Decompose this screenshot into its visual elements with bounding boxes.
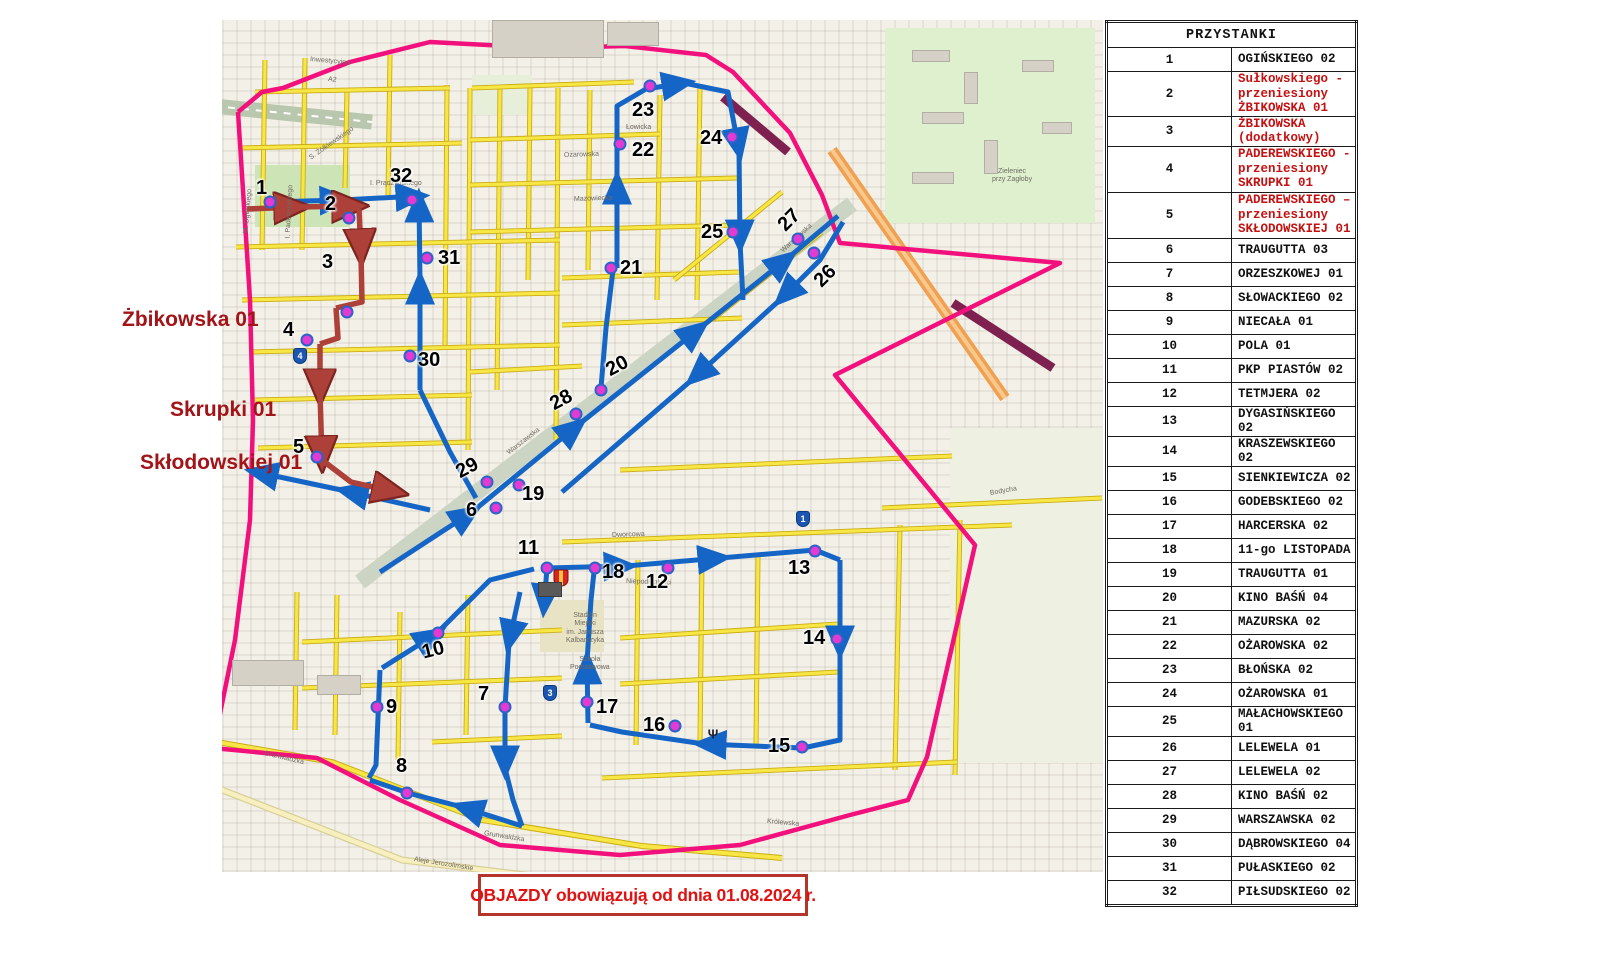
stop-marker-number: 16 xyxy=(643,715,665,735)
stop-name-cell: PKP PIASTÓW 02 xyxy=(1232,358,1357,382)
table-row: 20KINO BAŚŃ 04 xyxy=(1107,586,1357,610)
table-row: 2Sułkowskiego - przeniesionyŻBIKOWSKA 01 xyxy=(1107,72,1357,117)
stop-number-cell: 9 xyxy=(1107,310,1232,334)
stop-number-cell: 8 xyxy=(1107,286,1232,310)
stop-marker-dot xyxy=(406,194,419,207)
table-row: 15SIENKIEWICZA 02 xyxy=(1107,466,1357,490)
stop-marker-dot xyxy=(726,131,739,144)
stop-number-cell: 6 xyxy=(1107,238,1232,262)
table-row: 31PUŁASKIEGO 02 xyxy=(1107,856,1357,880)
poi-label: Szkoła Podstawowa xyxy=(570,656,610,673)
stop-number-cell: 22 xyxy=(1107,634,1232,658)
stop-number-cell: 7 xyxy=(1107,262,1232,286)
building-footprint xyxy=(1042,122,1072,134)
building-footprint xyxy=(607,22,659,46)
stop-marker-dot xyxy=(589,562,602,575)
relocated-stop-label: Skłodowskiej 01 xyxy=(140,451,302,475)
detour-banner-text: OBJAZDY obowiązują od dnia 01.08.2024 r. xyxy=(470,885,816,906)
table-row: 4PADEREWSKIEGO -przeniesionySKRUPKI 01 xyxy=(1107,146,1357,192)
stop-name-cell: WARSZAWSKA 02 xyxy=(1232,808,1357,832)
stop-number-cell: 10 xyxy=(1107,334,1232,358)
stop-number-cell: 27 xyxy=(1107,760,1232,784)
table-row: 30DĄBROWSKIEGO 04 xyxy=(1107,832,1357,856)
stops-table-title: PRZYSTANKI xyxy=(1107,22,1357,48)
stop-name-cell: OGIŃSKIEGO 02 xyxy=(1232,48,1357,72)
building-footprint xyxy=(538,582,562,597)
stop-name-cell: NIECAŁA 01 xyxy=(1232,310,1357,334)
stop-marker-number: 23 xyxy=(632,100,654,120)
stop-name-cell: KINO BAŚŃ 04 xyxy=(1232,586,1357,610)
stop-marker-dot xyxy=(727,226,740,239)
stop-marker-number: 9 xyxy=(386,697,397,717)
stop-marker-number: 15 xyxy=(768,736,790,756)
stop-marker-dot xyxy=(371,701,384,714)
stop-marker-dot xyxy=(421,252,434,265)
stop-number-cell: 20 xyxy=(1107,586,1232,610)
stop-name-cell: LELEWELA 02 xyxy=(1232,760,1357,784)
building-footprint xyxy=(1022,60,1054,72)
stop-name-cell: MAZURSKA 02 xyxy=(1232,610,1357,634)
table-row: 16GODEBSKIEGO 02 xyxy=(1107,490,1357,514)
stop-marker-dot xyxy=(595,384,608,397)
stop-number-cell: 24 xyxy=(1107,682,1232,706)
stop-marker-dot xyxy=(796,741,809,754)
stops-table: PRZYSTANKI 1OGIŃSKIEGO 022Sułkowskiego -… xyxy=(1105,20,1358,907)
stop-marker-dot xyxy=(481,476,494,489)
building-footprint xyxy=(912,50,950,62)
stop-number-cell: 4 xyxy=(1107,146,1232,192)
building-footprint xyxy=(232,660,304,686)
relocated-stop-label: Skrupki 01 xyxy=(170,398,276,422)
building-footprint xyxy=(922,112,964,124)
table-row: 13DYGASIŃSKIEGO 02 xyxy=(1107,406,1357,436)
stops-table-header-row: PRZYSTANKI xyxy=(1107,22,1357,48)
table-row: 24OŻAROWSKA 01 xyxy=(1107,682,1357,706)
stop-marker-number: 18 xyxy=(602,562,624,582)
road-number-shield: 1 xyxy=(796,511,810,527)
stop-name-cell: BŁOŃSKA 02 xyxy=(1232,658,1357,682)
table-row: 1811-go LISTOPADA xyxy=(1107,538,1357,562)
table-row: 28KINO BAŚŃ 02 xyxy=(1107,784,1357,808)
stop-marker-number: 30 xyxy=(418,350,440,370)
stop-marker-number: 8 xyxy=(396,756,407,776)
stop-name-cell: OŻAROWSKA 01 xyxy=(1232,682,1357,706)
road-number-shield: 4 xyxy=(293,348,307,364)
stop-marker-number: 7 xyxy=(478,684,489,704)
stop-number-cell: 32 xyxy=(1107,880,1232,905)
stop-number-cell: 17 xyxy=(1107,514,1232,538)
stop-name-cell: MAŁACHOWSKIEGO 01 xyxy=(1232,706,1357,736)
stop-number-cell: 31 xyxy=(1107,856,1232,880)
stop-number-cell: 23 xyxy=(1107,658,1232,682)
stop-marker-dot xyxy=(669,720,682,733)
stop-marker-number: 22 xyxy=(632,140,654,160)
table-row: 3ŻBIKOWSKA (dodatkowy) xyxy=(1107,116,1357,146)
stop-marker-dot xyxy=(792,233,805,246)
stop-name-cell: GODEBSKIEGO 02 xyxy=(1232,490,1357,514)
table-row: 5PADEREWSKIEGO –przeniesionySKŁODOWSKIEJ… xyxy=(1107,192,1357,238)
poi-label: Zieleniec przy Zagłoby xyxy=(992,168,1032,185)
table-row: 21MAZURSKA 02 xyxy=(1107,610,1357,634)
stop-name-cell: TRAUGUTTA 01 xyxy=(1232,562,1357,586)
stop-marker-dot xyxy=(644,80,657,93)
stop-marker-dot xyxy=(343,212,356,225)
table-row: 22OŻAROWSKA 02 xyxy=(1107,634,1357,658)
street-name-label: Ożarowska xyxy=(564,151,599,159)
building-footprint xyxy=(492,20,604,58)
table-row: 10POLA 01 xyxy=(1107,334,1357,358)
stop-marker-dot xyxy=(541,562,554,575)
stop-marker-number: 2 xyxy=(325,194,336,214)
stop-name-cell: OŻAROWSKA 02 xyxy=(1232,634,1357,658)
street-name-label: Mazowiecka xyxy=(574,195,613,203)
table-row: 6TRAUGUTTA 03 xyxy=(1107,238,1357,262)
poi-label: Stadion Miejski im. Janusza Kalbarczyka xyxy=(566,612,604,646)
stop-number-cell: 30 xyxy=(1107,832,1232,856)
stop-name-cell: 11-go LISTOPADA xyxy=(1232,538,1357,562)
relocated-stop-label: Żbikowska 01 xyxy=(122,308,259,332)
stop-marker-dot xyxy=(490,502,503,515)
stop-marker-dot xyxy=(311,451,324,464)
stop-marker-dot xyxy=(581,696,594,709)
table-row: 8SŁOWACKIEGO 02 xyxy=(1107,286,1357,310)
stop-name-cell: POLA 01 xyxy=(1232,334,1357,358)
stop-marker-number: 24 xyxy=(700,128,722,148)
stop-number-cell: 29 xyxy=(1107,808,1232,832)
building-footprint xyxy=(984,140,998,174)
stop-marker-number: 19 xyxy=(522,484,544,504)
table-row: 32PIŁSUDSKIEGO 02 xyxy=(1107,880,1357,905)
stop-marker-dot xyxy=(605,262,618,275)
stop-marker-dot xyxy=(401,787,414,800)
stop-marker-dot xyxy=(808,247,821,260)
station-symbol: Ψ xyxy=(708,727,719,742)
stop-number-cell: 19 xyxy=(1107,562,1232,586)
stop-name-cell: PADEREWSKIEGO -przeniesionySKRUPKI 01 xyxy=(1232,146,1357,192)
stop-name-cell: TRAUGUTTA 03 xyxy=(1232,238,1357,262)
stop-number-cell: 18 xyxy=(1107,538,1232,562)
stop-name-cell: KRASZEWSKIEGO 02 xyxy=(1232,436,1357,466)
stop-number-cell: 16 xyxy=(1107,490,1232,514)
stop-number-cell: 21 xyxy=(1107,610,1232,634)
stop-marker-dot xyxy=(614,138,627,151)
stop-marker-number: 17 xyxy=(596,697,618,717)
stop-name-cell: Sułkowskiego - przeniesionyŻBIKOWSKA 01 xyxy=(1232,72,1357,117)
building-footprint xyxy=(317,675,361,695)
stop-number-cell: 26 xyxy=(1107,736,1232,760)
stop-number-cell: 13 xyxy=(1107,406,1232,436)
stop-marker-number: 14 xyxy=(803,628,825,648)
street-name-label: Łowicka xyxy=(626,124,651,131)
stop-name-cell: DĄBROWSKIEGO 04 xyxy=(1232,832,1357,856)
stop-number-cell: 28 xyxy=(1107,784,1232,808)
stop-marker-number: 31 xyxy=(438,248,460,268)
stop-name-cell: SIENKIEWICZA 02 xyxy=(1232,466,1357,490)
stop-name-cell: PIŁSUDSKIEGO 02 xyxy=(1232,880,1357,905)
stop-marker-number: 10 xyxy=(420,638,446,663)
stop-number-cell: 15 xyxy=(1107,466,1232,490)
stop-marker-number: 6 xyxy=(466,500,477,520)
street-name-label: Dworcowa xyxy=(612,531,645,539)
table-row: 7ORZESZKOWEJ 01 xyxy=(1107,262,1357,286)
stop-number-cell: 2 xyxy=(1107,72,1232,117)
table-row: 26LELEWELA 01 xyxy=(1107,736,1357,760)
stop-number-cell: 12 xyxy=(1107,382,1232,406)
stop-marker-dot xyxy=(404,350,417,363)
stop-marker-number: 11 xyxy=(518,538,539,558)
stop-name-cell: HARCERSKA 02 xyxy=(1232,514,1357,538)
stop-name-cell: PADEREWSKIEGO –przeniesionySKŁODOWSKIEJ … xyxy=(1232,192,1357,238)
street-name-label: A2 xyxy=(328,76,337,84)
table-row: 9NIECAŁA 01 xyxy=(1107,310,1357,334)
table-row: 27LELEWELA 02 xyxy=(1107,760,1357,784)
table-row: 29WARSZAWSKA 02 xyxy=(1107,808,1357,832)
stop-name-cell: DYGASIŃSKIEGO 02 xyxy=(1232,406,1357,436)
stop-marker-dot xyxy=(831,633,844,646)
map-area: A2InwestycyjnaM. OgińskiegoI. Paderewski… xyxy=(222,20,1103,872)
stop-marker-dot xyxy=(301,334,314,347)
stop-marker-dot xyxy=(809,545,822,558)
stop-name-cell: LELEWELA 01 xyxy=(1232,736,1357,760)
stop-number-cell: 1 xyxy=(1107,48,1232,72)
stop-marker-number: 4 xyxy=(283,320,294,340)
stop-name-cell: SŁOWACKIEGO 02 xyxy=(1232,286,1357,310)
stop-marker-dot xyxy=(499,701,512,714)
stop-name-cell: ŻBIKOWSKA (dodatkowy) xyxy=(1232,116,1357,146)
table-row: 23BŁOŃSKA 02 xyxy=(1107,658,1357,682)
stop-marker-number: 3 xyxy=(322,252,333,272)
stop-marker-number: 32 xyxy=(390,166,412,186)
building-footprint xyxy=(964,72,978,104)
stop-marker-number: 21 xyxy=(620,258,642,278)
stop-marker-number: 25 xyxy=(701,222,723,242)
stop-marker-number: 12 xyxy=(646,572,668,592)
stop-number-cell: 3 xyxy=(1107,116,1232,146)
stop-number-cell: 11 xyxy=(1107,358,1232,382)
table-row: 17HARCERSKA 02 xyxy=(1107,514,1357,538)
table-row: 11PKP PIASTÓW 02 xyxy=(1107,358,1357,382)
stop-marker-dot xyxy=(341,306,354,319)
stop-name-cell: PUŁASKIEGO 02 xyxy=(1232,856,1357,880)
stop-marker-number: 13 xyxy=(788,558,810,578)
building-footprint xyxy=(912,172,954,184)
table-row: 1OGIŃSKIEGO 02 xyxy=(1107,48,1357,72)
stop-number-cell: 25 xyxy=(1107,706,1232,736)
table-row: 25MAŁACHOWSKIEGO 01 xyxy=(1107,706,1357,736)
table-row: 19TRAUGUTTA 01 xyxy=(1107,562,1357,586)
stop-name-cell: ORZESZKOWEJ 01 xyxy=(1232,262,1357,286)
road-number-shield: 3 xyxy=(543,685,557,701)
stop-marker-number: 1 xyxy=(256,178,267,198)
stop-marker-dot xyxy=(570,408,583,421)
detour-banner: OBJAZDY obowiązują od dnia 01.08.2024 r. xyxy=(478,874,808,916)
map-graphics xyxy=(222,20,1103,872)
stop-number-cell: 14 xyxy=(1107,436,1232,466)
table-row: 14KRASZEWSKIEGO 02 xyxy=(1107,436,1357,466)
stop-name-cell: KINO BAŚŃ 02 xyxy=(1232,784,1357,808)
stop-name-cell: TETMJERA 02 xyxy=(1232,382,1357,406)
detour-poster: A2InwestycyjnaM. OgińskiegoI. Paderewski… xyxy=(0,0,1611,965)
table-row: 12TETMJERA 02 xyxy=(1107,382,1357,406)
stop-number-cell: 5 xyxy=(1107,192,1232,238)
